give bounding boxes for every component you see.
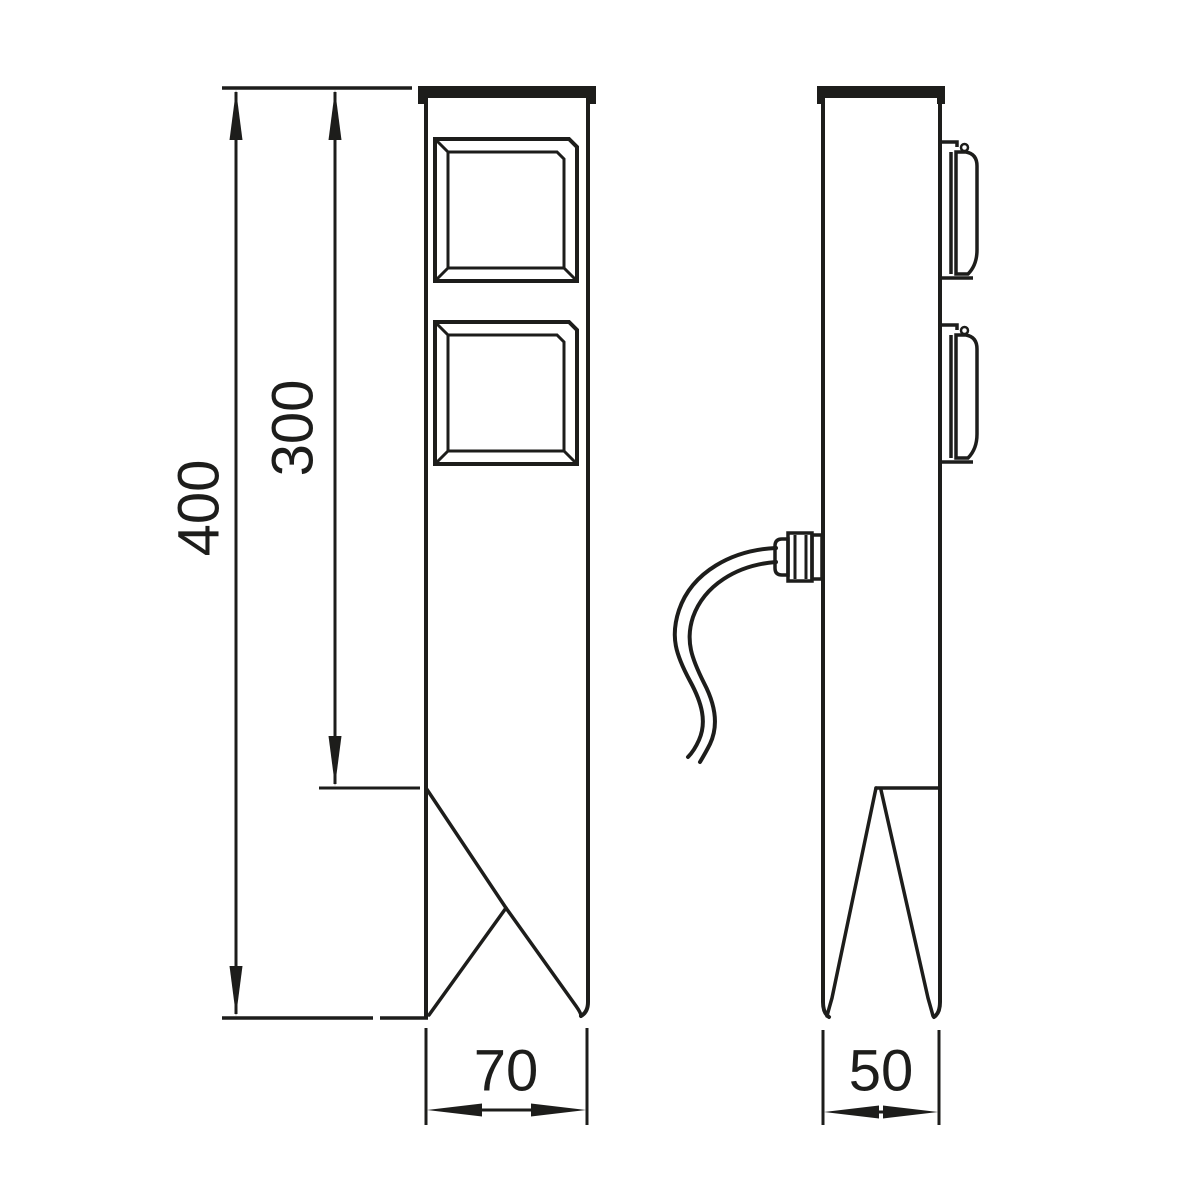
- dimension-70-label: 70: [474, 1039, 539, 1104]
- side-socket-2: [940, 325, 977, 462]
- side-socket-1-top-flange: [940, 142, 957, 147]
- front-socket-1-bevel-lines: [436, 140, 576, 280]
- front-socket-2-bevel-lines: [436, 323, 576, 463]
- front-socket-1: [435, 139, 577, 281]
- dimension-70: 70: [426, 1028, 587, 1125]
- front-view: [418, 86, 596, 1016]
- dimension-50-label: 50: [849, 1039, 914, 1104]
- dimension-300-arrow-up: [329, 90, 342, 140]
- dimension-400-arrow-down: [230, 966, 243, 1016]
- gland-nut-facets: [795, 535, 806, 579]
- dimension-50-arrow-right: [883, 1106, 938, 1119]
- front-socket-2-inner-frame: [448, 335, 564, 451]
- front-top-cap: [418, 86, 596, 104]
- dimension-300-arrow-down: [329, 736, 342, 786]
- side-top-cap: [817, 86, 945, 104]
- dimension-70-arrow-left: [427, 1104, 482, 1117]
- dimension-50-arrow-left: [824, 1106, 879, 1119]
- side-ground-spike: [827, 788, 940, 1016]
- side-socket-1-lid: [956, 152, 977, 274]
- dimension-400-label: 400: [167, 460, 232, 557]
- dimension-400: 400: [167, 90, 243, 1016]
- power-cable: [675, 548, 776, 762]
- side-socket-2-lid: [956, 335, 977, 458]
- side-spike-right-prong: [881, 790, 933, 1016]
- front-socket-2: [435, 322, 577, 464]
- side-view: [675, 86, 977, 1017]
- side-socket-2-hinge-pin: [961, 327, 968, 334]
- dimension-400-arrow-up: [230, 90, 243, 140]
- gland-flange: [812, 535, 822, 579]
- side-body-right-edge: [934, 98, 940, 1017]
- side-body-left-edge: [823, 98, 829, 1017]
- front-spike-fold-right: [506, 908, 581, 1016]
- dimension-300: 300: [261, 90, 342, 786]
- side-cap-bar: [817, 86, 945, 98]
- side-spike-left-prong: [827, 788, 876, 1016]
- front-socket-1-outer-frame: [435, 139, 577, 281]
- dimension-300-label: 300: [261, 380, 326, 477]
- side-socket-2-top-flange: [940, 325, 957, 330]
- front-spike-fold-left: [426, 788, 506, 1015]
- front-ground-spike: [426, 788, 581, 1016]
- side-socket-1: [940, 142, 977, 278]
- front-socket-2-outer-frame: [435, 322, 577, 464]
- front-body-right-edge: [581, 98, 588, 1016]
- front-socket-1-inner-frame: [448, 152, 564, 268]
- front-cap-bar: [418, 86, 596, 98]
- cable-gland: [775, 533, 822, 581]
- dimension-50: 50: [823, 1030, 939, 1125]
- side-socket-1-hinge-pin: [961, 144, 968, 151]
- technical-drawing-canvas: 400 300 70 50: [0, 0, 1200, 1200]
- gland-dome-cap: [775, 539, 788, 575]
- gland-nut: [788, 533, 812, 581]
- dimension-70-arrow-right: [531, 1104, 586, 1117]
- drawing-svg: 400 300 70 50: [0, 0, 1200, 1200]
